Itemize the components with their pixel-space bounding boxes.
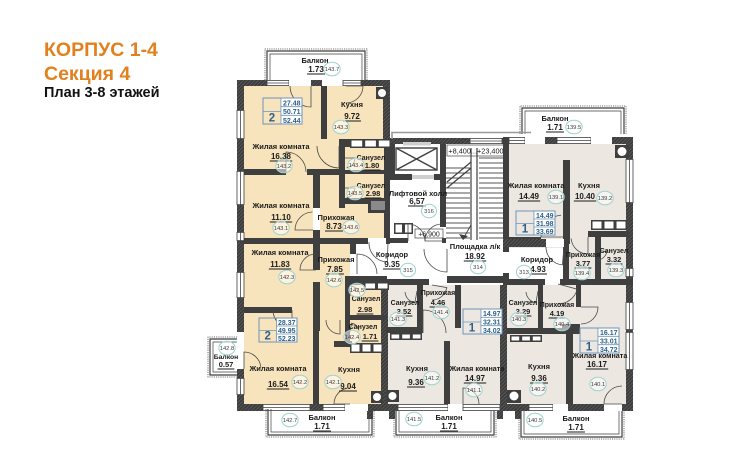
svg-text:8.73: 8.73 <box>326 222 342 231</box>
svg-text:18.92: 18.92 <box>465 252 486 261</box>
svg-text:1.80: 1.80 <box>365 161 380 170</box>
svg-text:Прихожая: Прихожая <box>421 290 456 297</box>
svg-text:142.2: 142.2 <box>293 380 308 386</box>
svg-text:9.04: 9.04 <box>340 382 356 391</box>
svg-text:27.48: 27.48 <box>283 100 301 107</box>
svg-text:0.57: 0.57 <box>219 360 234 369</box>
svg-text:+8,400...+23,400: +8,400...+23,400 <box>448 147 503 156</box>
svg-text:141.1: 141.1 <box>467 388 482 394</box>
svg-text:3.32: 3.32 <box>607 255 622 264</box>
svg-text:Жилая комната: Жилая комната <box>251 142 310 151</box>
svg-text:143.2: 143.2 <box>277 164 292 170</box>
svg-text:143.5: 143.5 <box>348 191 363 197</box>
svg-text:140.1: 140.1 <box>591 382 606 388</box>
svg-text:14.49: 14.49 <box>536 213 554 220</box>
svg-text:Балкон: Балкон <box>308 413 335 422</box>
svg-text:Секция 4: Секция 4 <box>44 63 130 85</box>
svg-text:139.3: 139.3 <box>609 268 624 274</box>
svg-text:315: 315 <box>403 268 413 274</box>
svg-text:Санузел: Санузел <box>391 300 420 307</box>
svg-text:1.71: 1.71 <box>441 422 457 431</box>
svg-text:143.4: 143.4 <box>349 163 364 169</box>
svg-text:4.19: 4.19 <box>550 309 565 318</box>
svg-text:50.71: 50.71 <box>283 109 301 116</box>
svg-text:6,57: 6,57 <box>409 197 425 206</box>
svg-text:33.01: 33.01 <box>600 338 618 345</box>
svg-text:143.6: 143.6 <box>344 225 359 231</box>
svg-text:Коридор: Коридор <box>521 255 554 264</box>
svg-text:Жилая комната: Жилая комната <box>250 248 309 257</box>
svg-text:140.2: 140.2 <box>531 387 546 393</box>
svg-text:Санузел: Санузел <box>600 248 629 255</box>
svg-text:Коридор: Коридор <box>376 250 409 259</box>
svg-text:142.3: 142.3 <box>280 275 295 281</box>
svg-text:Жилая комната: Жилая комната <box>449 364 506 373</box>
svg-text:2: 2 <box>269 113 275 125</box>
svg-text:33.69: 33.69 <box>536 229 554 236</box>
svg-text:14.49: 14.49 <box>519 192 540 201</box>
svg-text:143.3: 143.3 <box>334 125 349 131</box>
svg-text:Балкон: Балкон <box>562 414 589 423</box>
svg-text:Балкон: Балкон <box>435 413 462 422</box>
svg-text:Санузел: Санузел <box>509 300 538 307</box>
svg-text:141.4: 141.4 <box>434 310 449 316</box>
svg-text:140.4: 140.4 <box>555 322 570 328</box>
svg-text:139.2: 139.2 <box>598 196 613 202</box>
svg-text:КОРПУС 1-4: КОРПУС 1-4 <box>44 39 158 61</box>
svg-text:142.5: 142.5 <box>350 288 365 294</box>
svg-text:16.17: 16.17 <box>600 330 618 337</box>
svg-text:142.6: 142.6 <box>327 278 342 284</box>
svg-text:16.54: 16.54 <box>268 380 289 389</box>
svg-text:Жилая комната: Жилая комната <box>248 364 307 373</box>
svg-text:2: 2 <box>265 331 271 343</box>
svg-text:52.23: 52.23 <box>278 336 296 343</box>
svg-text:Площадка л/к: Площадка л/к <box>450 242 501 251</box>
svg-text:10.40: 10.40 <box>575 192 596 201</box>
svg-text:Балкон: Балкон <box>541 114 568 123</box>
svg-text:11.10: 11.10 <box>271 213 291 222</box>
svg-text:9.72: 9.72 <box>344 112 360 121</box>
svg-text:140.5: 140.5 <box>528 418 543 424</box>
svg-text:Кухня: Кухня <box>578 181 600 190</box>
svg-text:Жилая комната: Жилая комната <box>572 351 629 360</box>
svg-text:141.3: 141.3 <box>391 317 406 323</box>
svg-text:16.17: 16.17 <box>587 360 608 369</box>
svg-text:1.71: 1.71 <box>547 123 563 132</box>
svg-text:1: 1 <box>522 224 529 236</box>
svg-text:9.35: 9.35 <box>384 260 400 269</box>
svg-text:52.44: 52.44 <box>283 118 301 125</box>
svg-text:14.97: 14.97 <box>483 311 501 318</box>
svg-text:28.37: 28.37 <box>278 320 296 327</box>
svg-text:14.97: 14.97 <box>465 374 486 383</box>
svg-text:1.71: 1.71 <box>568 423 584 432</box>
svg-text:143.1: 143.1 <box>274 226 289 232</box>
svg-text:1.71: 1.71 <box>363 332 378 341</box>
svg-text:Жилая комната: Жилая комната <box>251 201 310 210</box>
svg-text:Прихожая: Прихожая <box>317 255 354 264</box>
svg-text:142.7: 142.7 <box>283 418 298 424</box>
svg-text:1: 1 <box>469 323 476 335</box>
svg-text:9.36: 9.36 <box>408 378 424 387</box>
svg-text:314: 314 <box>473 265 483 271</box>
svg-text:34.02: 34.02 <box>483 328 501 335</box>
svg-text:142.1: 142.1 <box>326 380 341 386</box>
svg-text:139.1: 139.1 <box>549 195 564 201</box>
svg-text:+6,900: +6,900 <box>418 232 440 239</box>
svg-text:7.85: 7.85 <box>327 265 343 274</box>
svg-text:2.98: 2.98 <box>358 305 373 314</box>
svg-text:313: 313 <box>519 270 529 276</box>
svg-text:142.8: 142.8 <box>220 346 235 352</box>
svg-text:1.71: 1.71 <box>314 422 330 431</box>
svg-text:2.98: 2.98 <box>366 189 381 198</box>
svg-text:139.4: 139.4 <box>575 271 590 277</box>
svg-text:49.95: 49.95 <box>278 328 296 335</box>
svg-text:Кухня: Кухня <box>341 100 363 109</box>
svg-text:4.93: 4.93 <box>530 265 546 274</box>
svg-text:11.83: 11.83 <box>270 260 290 269</box>
svg-text:Кухня: Кухня <box>406 364 428 373</box>
svg-text:141.2: 141.2 <box>425 376 440 382</box>
svg-text:139.5: 139.5 <box>567 125 582 131</box>
svg-text:Кухня: Кухня <box>338 365 360 374</box>
svg-text:31.98: 31.98 <box>536 221 554 228</box>
svg-text:План 3-8 этажей: План 3-8 этажей <box>44 85 160 101</box>
svg-text:Прихожая: Прихожая <box>566 252 601 259</box>
svg-text:Прихожая: Прихожая <box>540 302 575 309</box>
svg-text:142.4: 142.4 <box>345 335 360 341</box>
svg-text:140.3: 140.3 <box>512 317 527 323</box>
svg-text:1.73: 1.73 <box>308 65 324 74</box>
svg-text:32.31: 32.31 <box>483 319 501 326</box>
svg-text:Жилая комната: Жилая комната <box>506 181 565 190</box>
svg-text:143.7: 143.7 <box>325 67 340 73</box>
svg-text:316: 316 <box>424 209 434 215</box>
svg-text:Кухня: Кухня <box>528 362 550 371</box>
svg-text:Балкон: Балкон <box>301 56 328 65</box>
svg-text:9.36: 9.36 <box>531 374 547 383</box>
svg-text:141.5: 141.5 <box>407 417 422 423</box>
